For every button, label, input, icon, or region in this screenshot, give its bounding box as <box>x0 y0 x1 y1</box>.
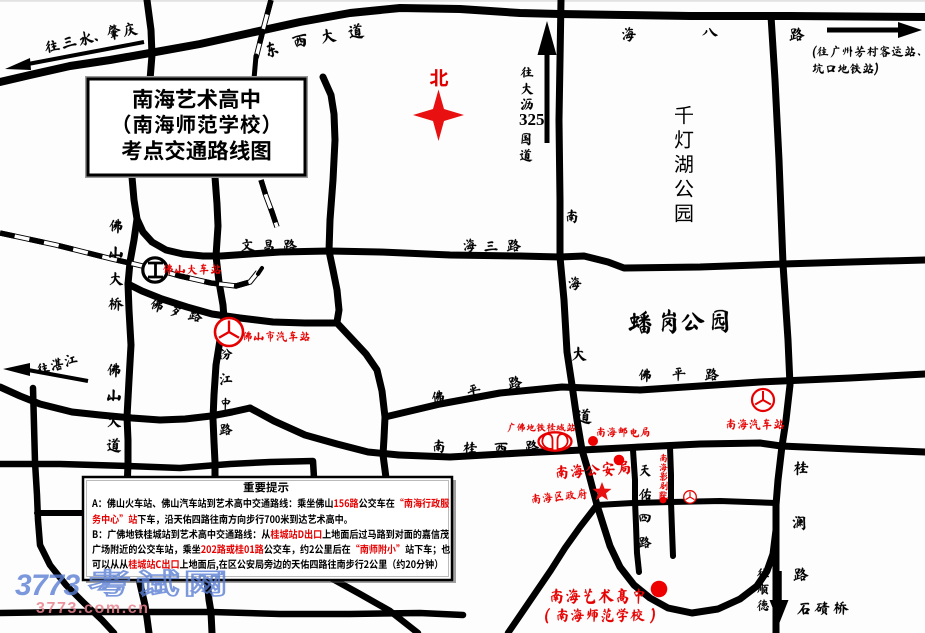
svg-text:3773: 3773 <box>15 569 81 602</box>
svg-text:3773.com.cn: 3773.com.cn <box>36 600 150 617</box>
svg-text:325: 325 <box>519 110 545 129</box>
